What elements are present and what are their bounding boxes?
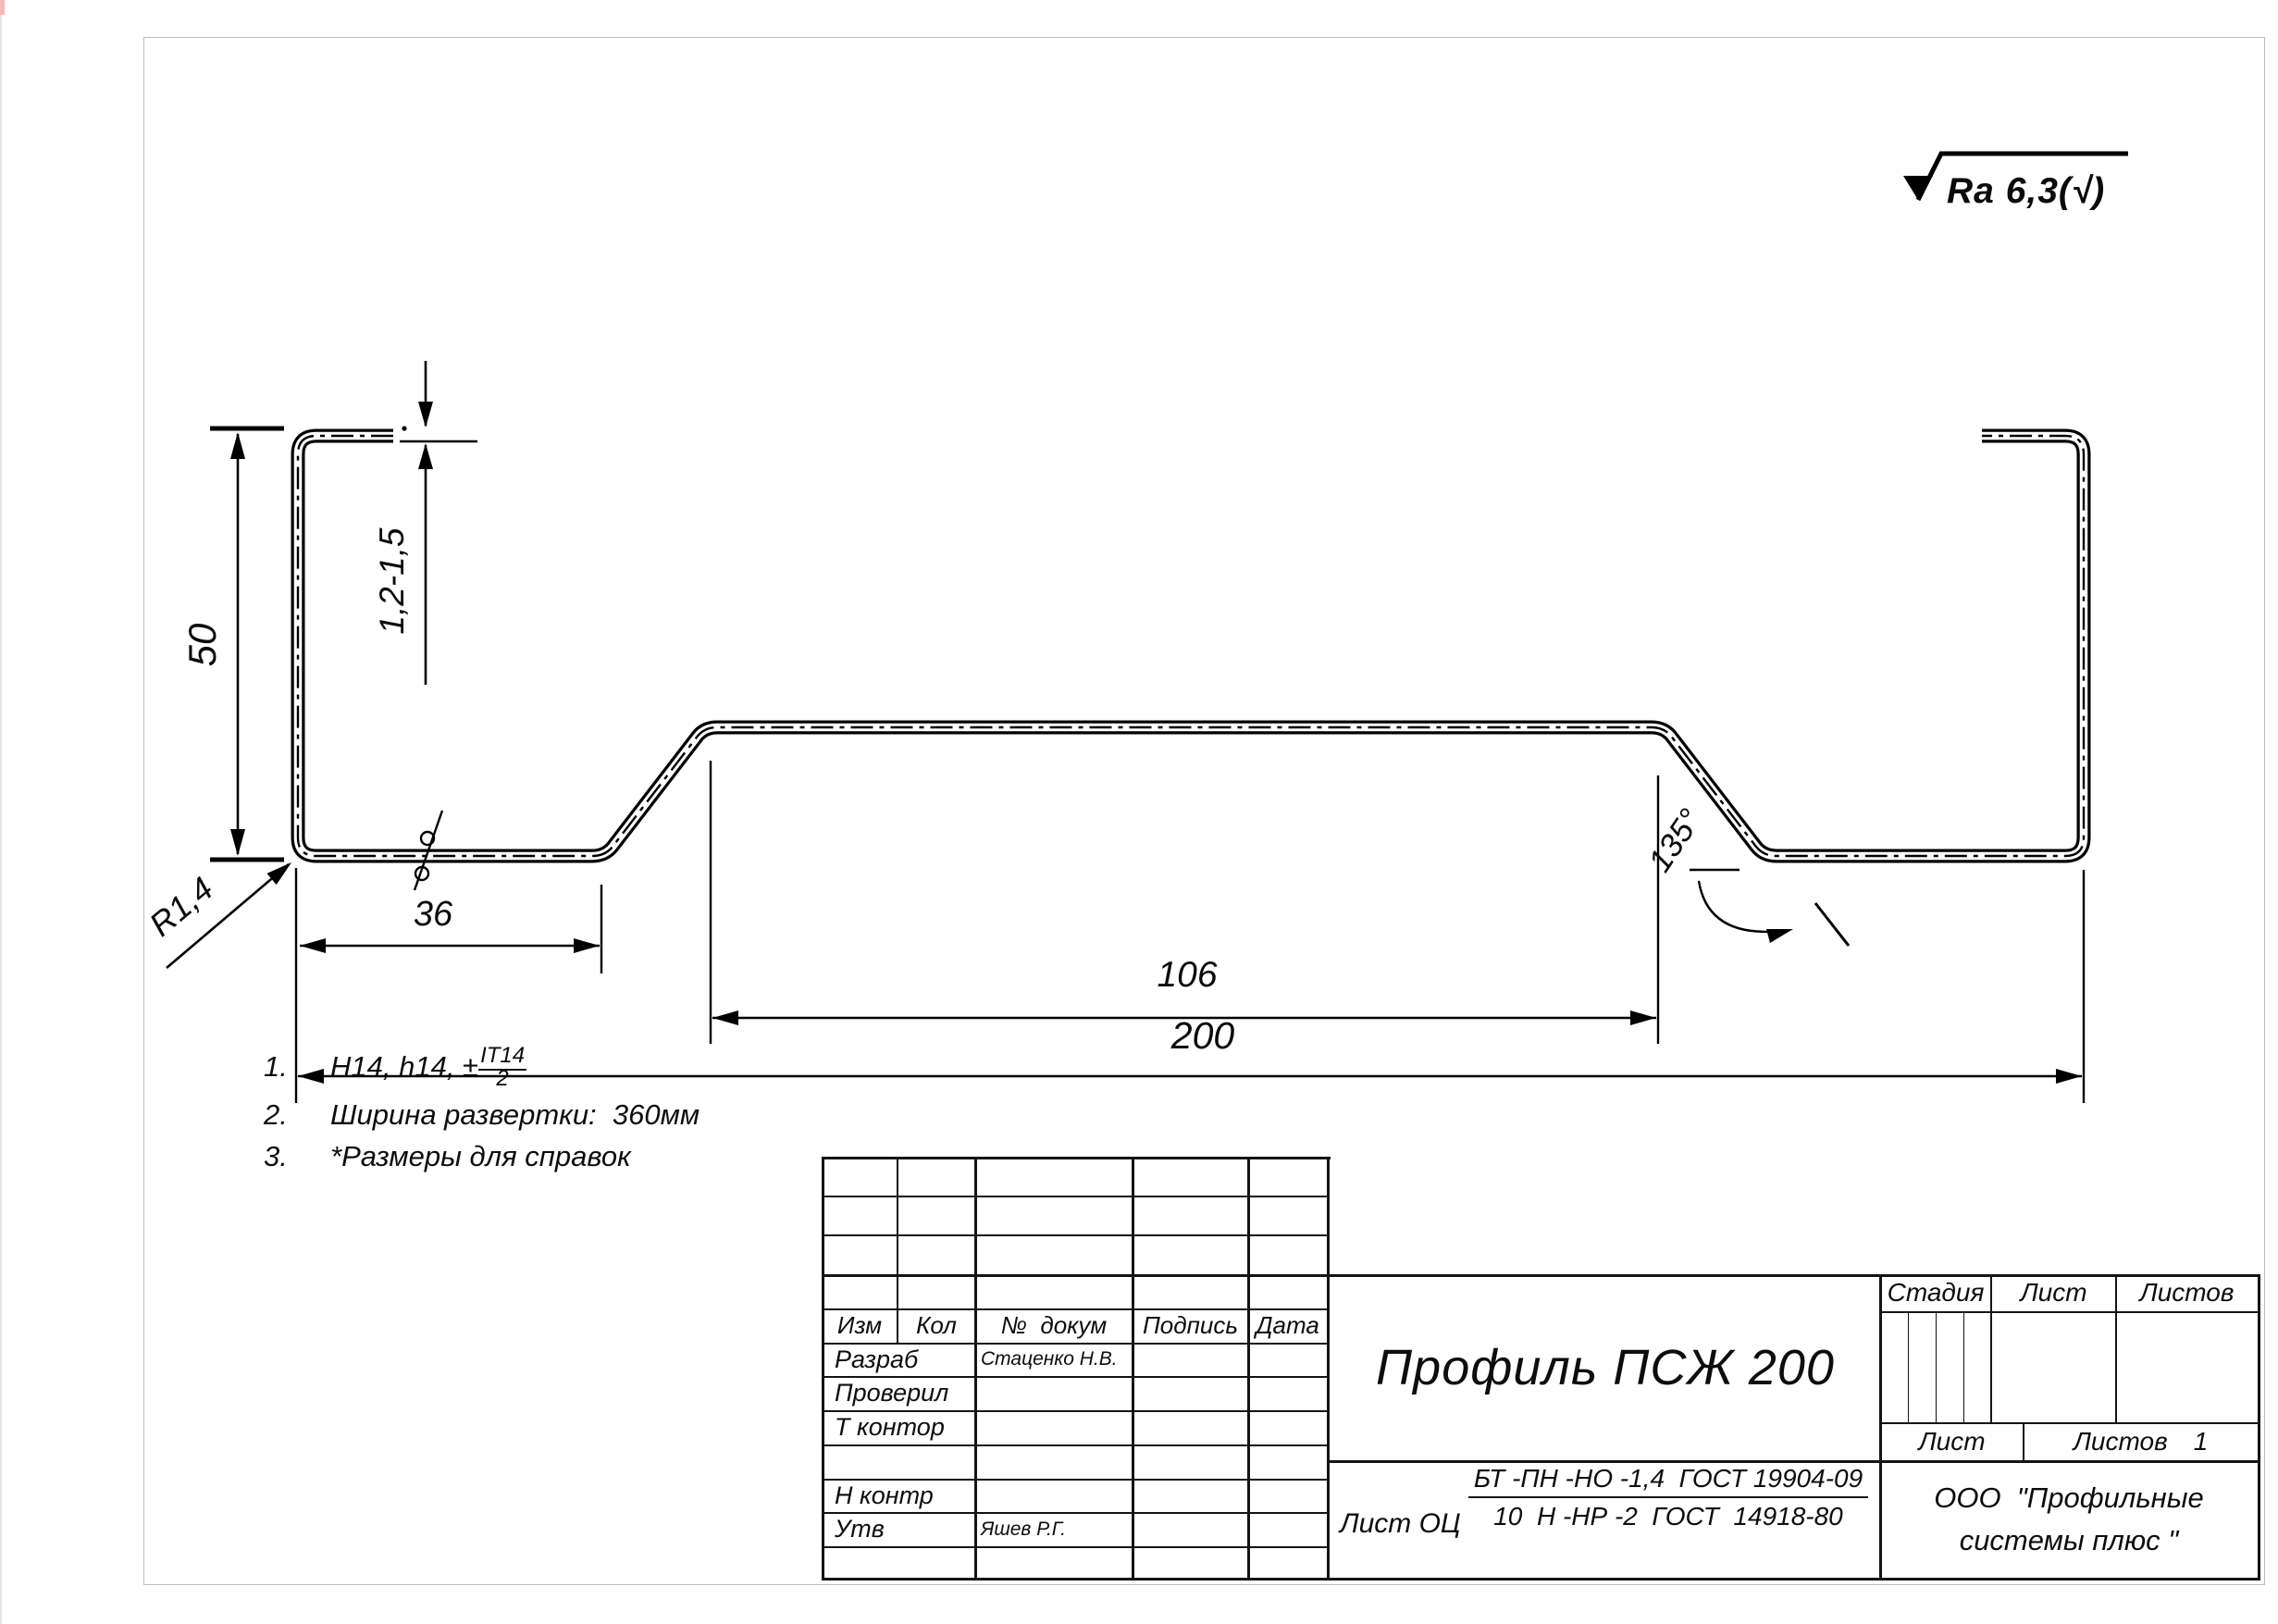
arrow-106-right bbox=[1630, 1010, 1656, 1025]
rev-col-docnum: № докум bbox=[975, 1308, 1133, 1343]
arrow-36-right bbox=[574, 938, 600, 953]
arrow-radius bbox=[267, 862, 292, 885]
roughness-triangle bbox=[1903, 176, 1933, 200]
profile-section bbox=[298, 426, 2084, 856]
note-1-frac-den: 2 bbox=[496, 1066, 508, 1091]
arrow-50-bottom bbox=[230, 829, 245, 856]
sig-label-ncontrol: Н контр bbox=[827, 1479, 978, 1512]
arrow-thick-down bbox=[418, 402, 433, 428]
company-name-line1: ООО "Профильные bbox=[1934, 1477, 2204, 1519]
sig-label-checked: Проверил bbox=[827, 1376, 978, 1410]
profile-outer bbox=[298, 436, 2084, 856]
sheet-header: Лист bbox=[1991, 1274, 2116, 1311]
note-3-text: *Размеры для справок bbox=[330, 1140, 631, 1173]
material-numerator: БТ -ПН -НО -1,4 ГОСТ 19904-09 bbox=[1468, 1464, 1868, 1498]
material-cell: Лист ОЦ БТ -ПН -НО -1,4 ГОСТ 19904-09 10… bbox=[1331, 1460, 1878, 1578]
centerline-dot bbox=[402, 426, 406, 430]
sig-label-empty bbox=[827, 1444, 978, 1479]
sheets-header: Листов bbox=[2116, 1274, 2258, 1311]
document-title: Профиль ПСЖ 200 bbox=[1331, 1277, 1880, 1485]
dim-thickness-label: 1,2-1,5 bbox=[373, 527, 411, 635]
material-fraction: БТ -ПН -НО -1,4 ГОСТ 19904-09 10 Н -НР -… bbox=[1451, 1464, 1886, 1531]
sig-label-tcontrol: Т контор bbox=[827, 1410, 978, 1444]
arrow-200-right bbox=[2056, 1069, 2082, 1084]
sheets-row-label: Листов bbox=[2074, 1427, 2168, 1457]
stage-header: Стадия bbox=[1880, 1274, 1991, 1311]
arrow-106-left bbox=[712, 1010, 738, 1025]
angle-arc bbox=[1699, 881, 1782, 932]
note-3-number: 3. bbox=[264, 1140, 330, 1173]
note-3: 3. *Размеры для справок bbox=[264, 1140, 699, 1173]
dimension-lines bbox=[167, 154, 2128, 1103]
arrow-angle bbox=[1766, 929, 1793, 943]
rev-col-izm: Изм bbox=[822, 1308, 898, 1343]
notes-list: 1. H14, h14, ±IT142 2. Ширина развертки:… bbox=[264, 1044, 699, 1182]
title-block: Изм Кол № докум Подпись Дата Разраб Пров… bbox=[822, 1157, 2260, 1581]
dim-web-label: 106 bbox=[1157, 955, 1217, 995]
sig-name-approved: Яшев Р.Г. bbox=[981, 1512, 1133, 1546]
sig-name-developed: Стаценко Н.В. bbox=[981, 1343, 1133, 1376]
note-2-text: Ширина развертки: 360мм bbox=[330, 1098, 699, 1132]
dim-angle-label: 135° bbox=[1641, 802, 1709, 878]
sig-label-developed: Разраб bbox=[827, 1343, 978, 1376]
company-cell: ООО "Профильные системы плюс " bbox=[1880, 1460, 2258, 1578]
arrow-50-top bbox=[230, 432, 245, 459]
dim-height-label: 50 bbox=[180, 623, 224, 666]
arrow-36-left bbox=[300, 938, 326, 953]
note-2: 2. Ширина развертки: 360мм bbox=[264, 1098, 699, 1132]
sheet-row-label: Лист bbox=[1880, 1422, 2024, 1460]
company-name-line2: системы плюс " bbox=[1960, 1519, 2179, 1562]
sheets-row-value: 1 bbox=[2194, 1427, 2209, 1457]
roughness-label: Ra 6,3(√) bbox=[1947, 171, 2105, 211]
note-1-number: 1. bbox=[264, 1050, 330, 1084]
profile-centerline bbox=[298, 436, 2084, 856]
arrow-thick-up bbox=[418, 443, 433, 469]
dimension-arrowheads bbox=[230, 176, 2082, 1084]
dim-flange-label: 36 bbox=[414, 895, 453, 934]
rev-col-signature: Подпись bbox=[1133, 1308, 1248, 1343]
note-1: 1. H14, h14, ±IT142 bbox=[264, 1044, 699, 1090]
profile-gap bbox=[298, 436, 2084, 856]
note-1-text: H14, h14, ± bbox=[330, 1050, 478, 1084]
sheets-row: Листов 1 bbox=[2024, 1422, 2258, 1460]
rev-col-date: Дата bbox=[1248, 1308, 1327, 1343]
note-2-number: 2. bbox=[264, 1098, 330, 1132]
material-denominator: 10 Н -НР -2 ГОСТ 14918-80 bbox=[1451, 1498, 1886, 1531]
material-prefix: Лист ОЦ bbox=[1340, 1508, 1461, 1540]
sig-label-approved: Утв bbox=[827, 1512, 978, 1546]
dim-overall-label: 200 bbox=[1170, 1014, 1235, 1057]
rev-col-kol: Кол bbox=[898, 1308, 975, 1343]
angle-ref-stroke bbox=[1815, 903, 1849, 946]
note-1-fraction: IT142 bbox=[478, 1044, 526, 1090]
